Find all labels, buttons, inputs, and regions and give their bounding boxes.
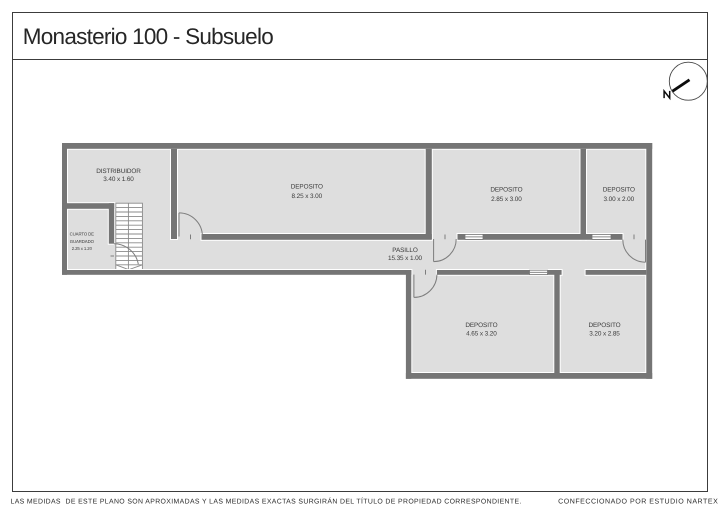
svg-text:GUARDADO: GUARDADO xyxy=(70,239,95,244)
svg-text:2.25 x 1.20: 2.25 x 1.20 xyxy=(72,246,93,251)
svg-text:Monasterio 100 - Subsuelo: Monasterio 100 - Subsuelo xyxy=(23,24,273,49)
svg-text:DEPOSITO: DEPOSITO xyxy=(490,186,522,193)
svg-text:DEPOSITO: DEPOSITO xyxy=(588,322,620,329)
svg-text:3.00 x 2.00: 3.00 x 2.00 xyxy=(604,196,635,203)
svg-text:15.35 x 1.00: 15.35 x 1.00 xyxy=(388,255,423,262)
svg-text:PASILLO: PASILLO xyxy=(392,247,418,254)
svg-text:8.25 x 3.00: 8.25 x 3.00 xyxy=(292,193,323,200)
svg-text:LAS MEDIDAS DE ESTE PLANO SON: LAS MEDIDAS DE ESTE PLANO SON APROXIMADA… xyxy=(11,498,522,506)
svg-text:4.65 x 3.20: 4.65 x 3.20 xyxy=(466,330,497,337)
svg-text:DEPOSITO: DEPOSITO xyxy=(603,186,635,193)
svg-text:3.40 x 1.60: 3.40 x 1.60 xyxy=(103,176,134,183)
svg-text:CUARTO DE: CUARTO DE xyxy=(70,231,94,236)
svg-text:CONFECCIONADO POR ESTUDIO NART: CONFECCIONADO POR ESTUDIO NARTEX xyxy=(558,499,718,506)
svg-text:2.85 x 3.00: 2.85 x 3.00 xyxy=(491,196,522,203)
svg-text:DEPOSITO: DEPOSITO xyxy=(291,183,323,190)
svg-text:DEPOSITO: DEPOSITO xyxy=(465,322,497,329)
svg-text:DISTRIBUIDOR: DISTRIBUIDOR xyxy=(96,168,141,175)
svg-text:3.20 x 2.85: 3.20 x 2.85 xyxy=(589,330,620,337)
